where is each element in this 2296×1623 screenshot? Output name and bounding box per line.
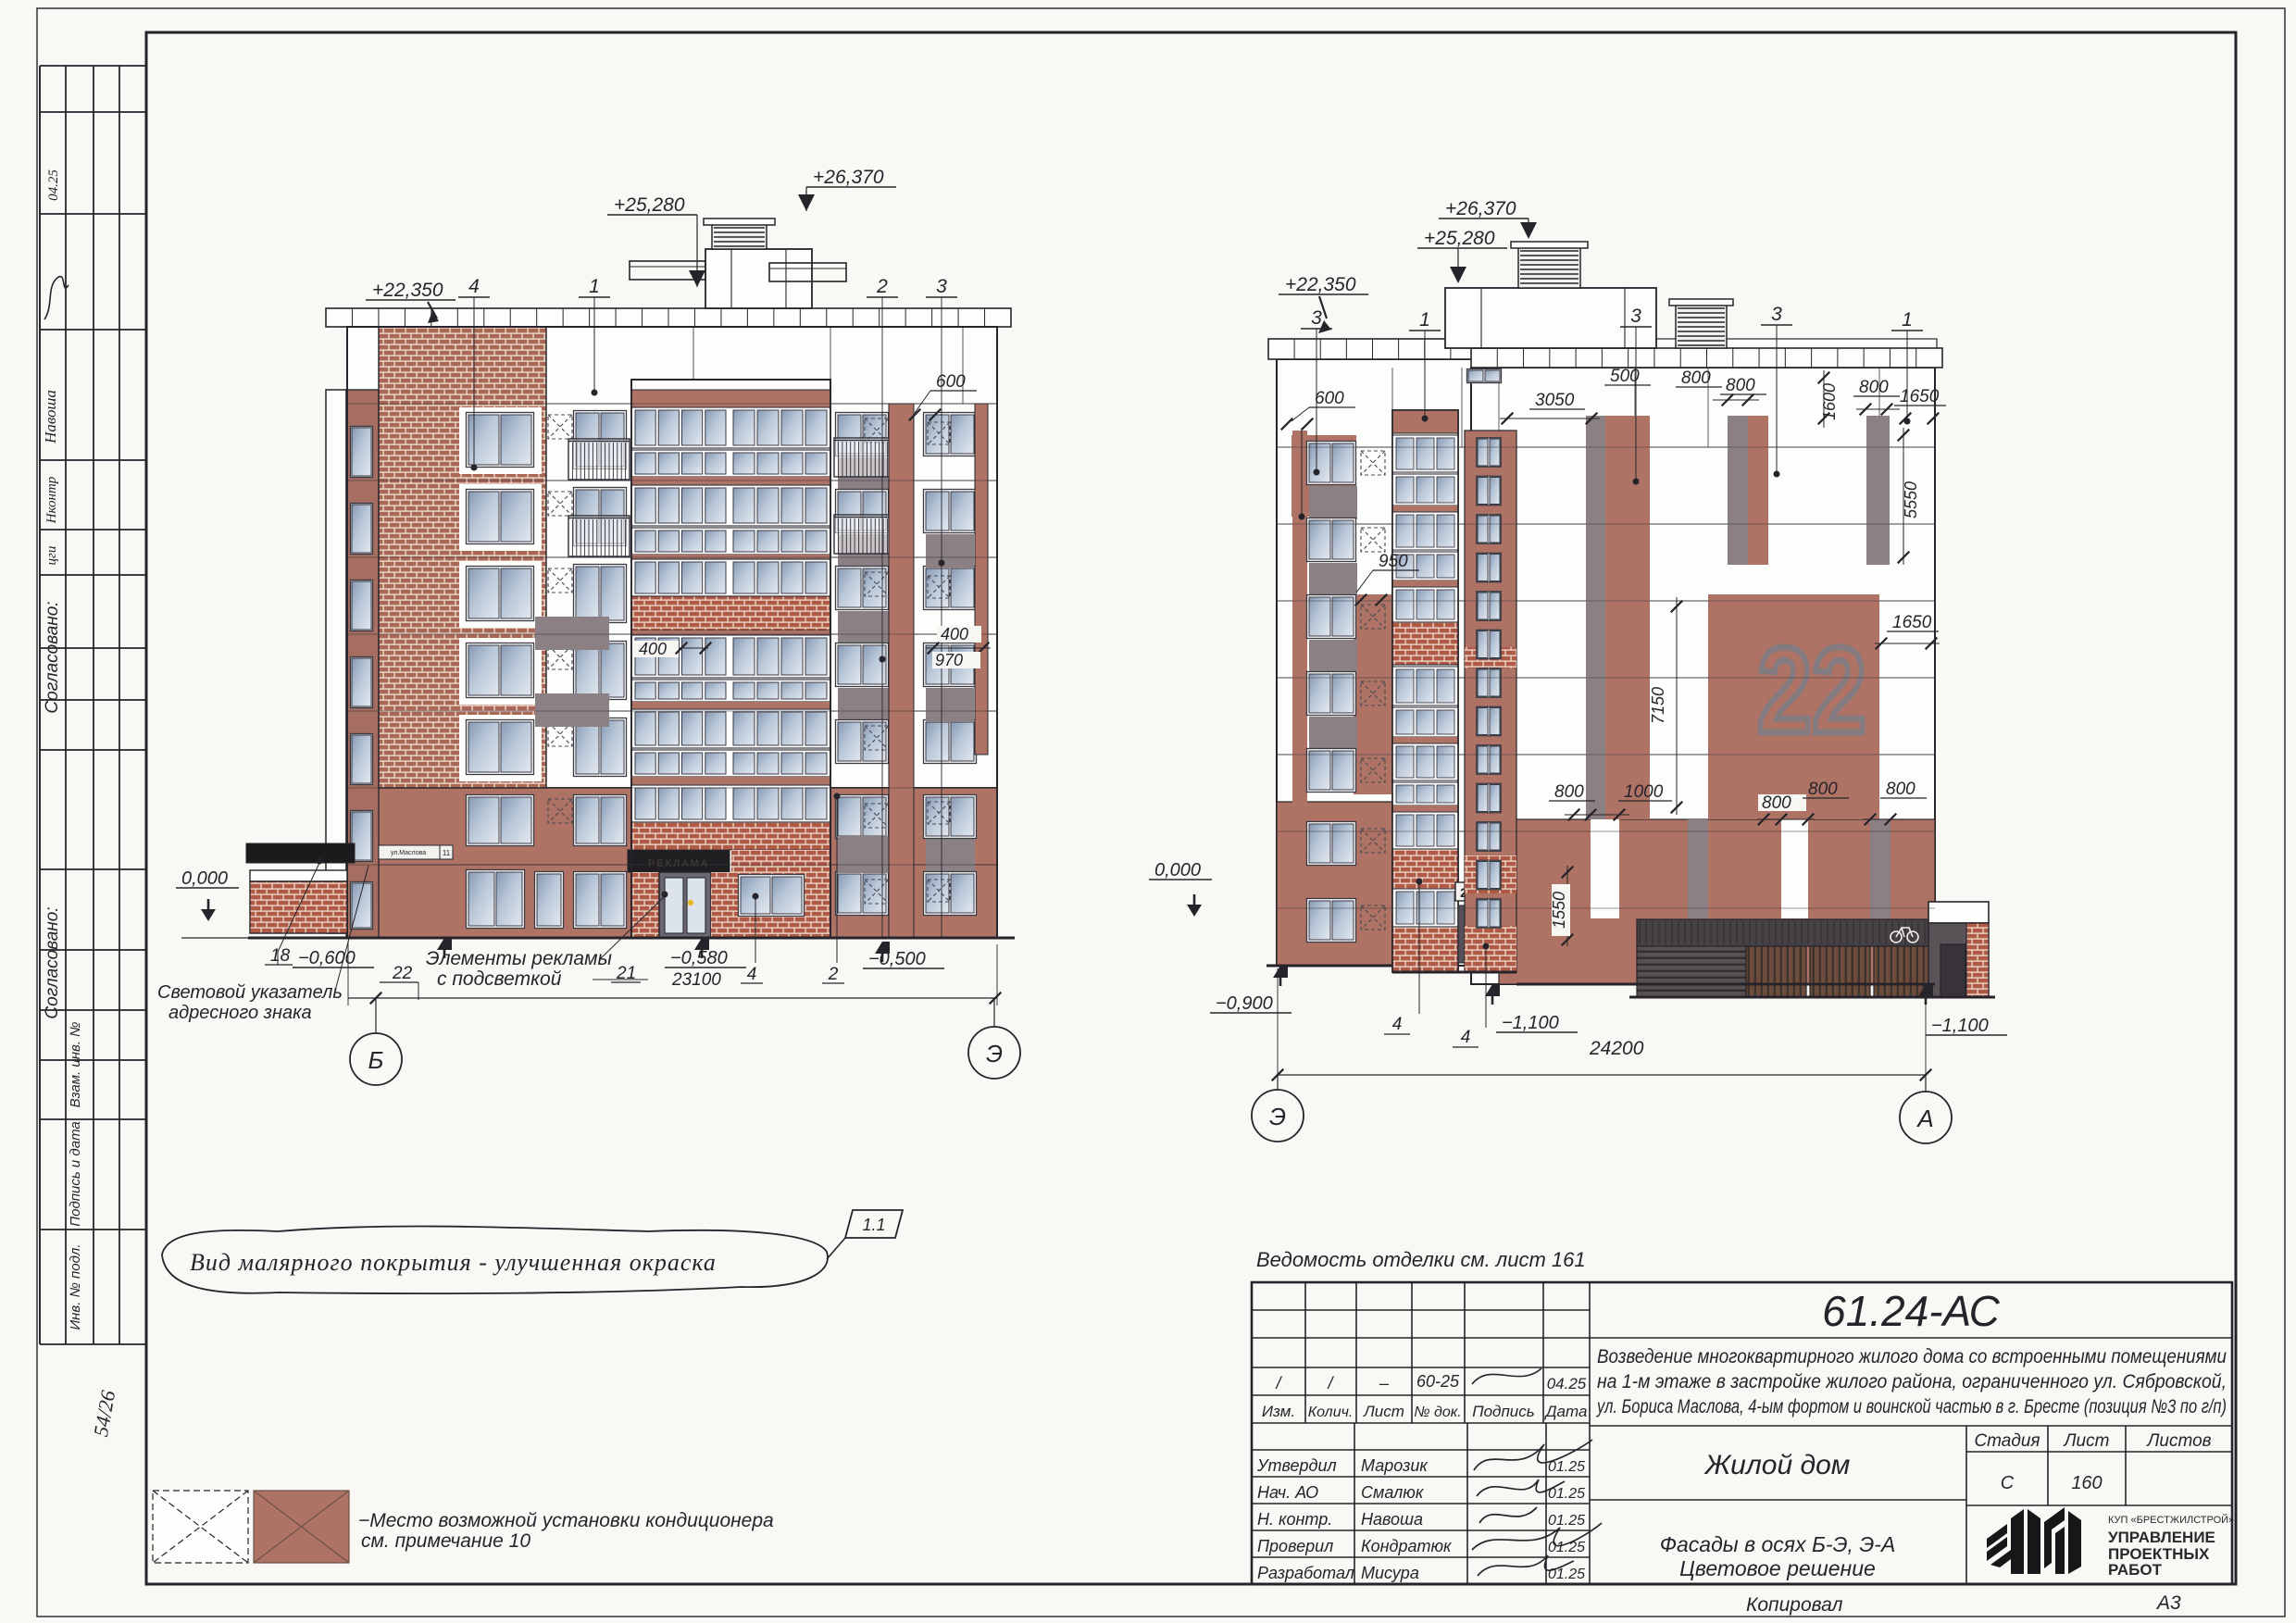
svg-text:600: 600 xyxy=(936,372,966,392)
svg-text:+25,280: +25,280 xyxy=(1424,228,1495,249)
svg-text:Марозик: Марозик xyxy=(1361,1456,1429,1475)
svg-text:Разработал: Разработал xyxy=(1257,1564,1354,1582)
svg-text:04.25: 04.25 xyxy=(46,169,61,201)
svg-text:+25,280: +25,280 xyxy=(614,194,685,216)
svg-text:400: 400 xyxy=(941,625,968,643)
svg-text:970: 970 xyxy=(935,651,963,669)
svg-text:160: 160 xyxy=(2071,1473,2102,1493)
svg-text:800: 800 xyxy=(1681,368,1711,388)
svg-text:−0,600: −0,600 xyxy=(298,948,356,968)
svg-text:ул. Бориса Маслова, 4-ым форто: ул. Бориса Маслова, 4-ым фортом и воинск… xyxy=(1595,1396,2227,1417)
svg-text:цги: цги xyxy=(44,546,59,566)
svg-text:800: 800 xyxy=(1554,782,1584,802)
svg-text:Смалюк: Смалюк xyxy=(1361,1483,1425,1502)
svg-text:18: 18 xyxy=(270,946,291,966)
svg-text:Б: Б xyxy=(368,1046,384,1074)
svg-text:на 1-м этаже в застройке жилог: на 1-м этаже в застройке жилого района, … xyxy=(1597,1371,2227,1392)
svg-text:Навоша: Навоша xyxy=(42,390,59,444)
svg-text:Инв. № подл.: Инв. № подл. xyxy=(68,1243,83,1330)
svg-text:3: 3 xyxy=(1771,304,1782,325)
svg-text:–: – xyxy=(1379,1374,1390,1392)
svg-text:3: 3 xyxy=(1311,307,1322,329)
svg-text:Утвердил: Утвердил xyxy=(1256,1456,1337,1475)
svg-text:Н. контр.: Н. контр. xyxy=(1257,1510,1332,1529)
svg-text:С: С xyxy=(2001,1473,2015,1493)
svg-text:21: 21 xyxy=(616,964,636,983)
svg-text:1550: 1550 xyxy=(1550,892,1568,929)
svg-text:800: 800 xyxy=(1726,376,1755,395)
svg-text:РАБОТ: РАБОТ xyxy=(2108,1561,2163,1579)
svg-text:1650: 1650 xyxy=(1892,613,1932,632)
svg-text:−1,100: −1,100 xyxy=(1502,1013,1559,1033)
svg-text:Лист: Лист xyxy=(1363,1403,1404,1420)
svg-text:5550: 5550 xyxy=(1902,481,1920,518)
svg-text:800: 800 xyxy=(1808,780,1838,799)
svg-text:Подпись: Подпись xyxy=(1472,1403,1534,1420)
svg-text:+22,350: +22,350 xyxy=(372,280,443,301)
svg-text:1: 1 xyxy=(1419,309,1430,331)
svg-text:Э: Э xyxy=(986,1040,1003,1067)
svg-text:Колич.: Колич. xyxy=(1308,1405,1354,1420)
svg-text:0,000: 0,000 xyxy=(1154,860,1201,880)
svg-text:Цветовое решение: Цветовое решение xyxy=(1679,1556,1876,1580)
svg-text:см. примечание 10: см. примечание 10 xyxy=(361,1530,530,1552)
svg-text:А: А xyxy=(1915,1105,1933,1132)
svg-text:Взам. инв. №: Взам. инв. № xyxy=(68,1022,83,1108)
svg-text:Копировал: Копировал xyxy=(1746,1594,1843,1616)
svg-text:4: 4 xyxy=(747,965,757,984)
svg-text:800: 800 xyxy=(1886,780,1915,799)
svg-text:800: 800 xyxy=(1762,793,1791,813)
svg-text:Мисура: Мисура xyxy=(1361,1564,1419,1582)
svg-text:1.1: 1.1 xyxy=(862,1216,885,1234)
svg-text:24200: 24200 xyxy=(1589,1038,1644,1059)
svg-text:А3: А3 xyxy=(2155,1592,2181,1614)
svg-text:УПРАВЛЕНИЕ: УПРАВЛЕНИЕ xyxy=(2108,1529,2215,1546)
svg-text:22: 22 xyxy=(392,964,413,983)
svg-text:ул.Маслова: ул.Маслова xyxy=(391,850,426,856)
svg-text:3050: 3050 xyxy=(1535,391,1575,410)
svg-text:Стадия: Стадия xyxy=(1974,1431,2040,1451)
svg-text:1600: 1600 xyxy=(1820,383,1839,420)
svg-text:0,000: 0,000 xyxy=(181,868,228,889)
svg-text:КУП «БРЕСТЖИЛСТРОЙ»: КУП «БРЕСТЖИЛСТРОЙ» xyxy=(2108,1514,2234,1526)
svg-text:7150: 7150 xyxy=(1649,687,1667,724)
svg-text:адресного знака: адресного знака xyxy=(168,1003,312,1023)
svg-text:23100: 23100 xyxy=(671,970,721,990)
svg-text:01.25: 01.25 xyxy=(1548,1513,1585,1529)
svg-text:Кондратюк: Кондратюк xyxy=(1361,1537,1453,1555)
svg-text:04.25: 04.25 xyxy=(1547,1375,1587,1392)
svg-text:60-25: 60-25 xyxy=(1416,1372,1460,1391)
svg-text:Нач. АО: Нач. АО xyxy=(1257,1483,1318,1502)
svg-text:+22,350: +22,350 xyxy=(1285,274,1356,295)
svg-text:+26,370: +26,370 xyxy=(813,167,884,188)
svg-text:500: 500 xyxy=(1610,367,1640,386)
svg-text:РЕКЛАМА: РЕКЛАМА xyxy=(648,858,709,869)
svg-text:600: 600 xyxy=(1315,389,1344,408)
svg-text:Э: Э xyxy=(1269,1103,1286,1130)
svg-text:1000: 1000 xyxy=(1624,782,1664,802)
svg-text:Проверил: Проверил xyxy=(1257,1537,1333,1555)
svg-text:Дата: Дата xyxy=(1544,1403,1588,1420)
svg-text:1: 1 xyxy=(1902,309,1913,331)
svg-text:−0,900: −0,900 xyxy=(1216,993,1273,1014)
svg-text:4: 4 xyxy=(1461,1028,1471,1047)
svg-text:Жилой дом: Жилой дом xyxy=(1703,1450,1851,1480)
svg-text:−Место возможной установки кон: −Место возможной установки кондиционера xyxy=(358,1510,774,1531)
svg-text:Листов: Листов xyxy=(2145,1431,2211,1451)
svg-text:1650: 1650 xyxy=(1900,387,1940,406)
svg-text:400: 400 xyxy=(639,640,667,658)
svg-text:2: 2 xyxy=(828,965,839,984)
svg-text:2: 2 xyxy=(876,276,888,297)
svg-text:№ док.: № док. xyxy=(1414,1405,1462,1420)
svg-text:Вид малярного покрытия - ул: Вид малярного покрытия - улучшенная окра… xyxy=(190,1249,717,1276)
svg-text:Нконтр: Нконтр xyxy=(44,476,59,524)
svg-text:Ведомость отделки см. лист 161: Ведомость отделки см. лист 161 xyxy=(1256,1248,1586,1271)
svg-text:Возведение многоквартирного жи: Возведение многоквартирного жилого дома … xyxy=(1597,1346,2227,1367)
svg-text:Подпись и дата: Подпись и дата xyxy=(68,1121,83,1226)
svg-text:950: 950 xyxy=(1379,552,1408,571)
svg-text:+26,370: +26,370 xyxy=(1445,198,1516,219)
svg-text:4: 4 xyxy=(468,276,480,297)
svg-text:61.24-АС: 61.24-АС xyxy=(1822,1287,2001,1335)
svg-text:11: 11 xyxy=(443,849,451,857)
svg-text:800: 800 xyxy=(1859,378,1889,397)
svg-text:1: 1 xyxy=(589,276,600,297)
svg-text:−1,100: −1,100 xyxy=(1931,1016,1989,1036)
svg-text:22: 22 xyxy=(1757,622,1866,758)
svg-text:Изм.: Изм. xyxy=(1262,1403,1295,1420)
svg-text:Навоша: Навоша xyxy=(1361,1510,1423,1529)
svg-text:Лист: Лист xyxy=(2063,1431,2110,1451)
svg-text:01.25: 01.25 xyxy=(1548,1486,1585,1502)
svg-text:−0,580: −0,580 xyxy=(670,948,728,968)
svg-text:Фасады в осях Б-Э, Э-А: Фасады в осях Б-Э, Э-А xyxy=(1660,1532,1896,1556)
svg-text:Согласовано:: Согласовано: xyxy=(43,906,62,1018)
svg-text:с подсветкой: с подсветкой xyxy=(437,968,562,990)
svg-text:3: 3 xyxy=(1630,306,1641,327)
svg-text:Элементы рекламы: Элементы рекламы xyxy=(426,948,612,969)
svg-text:4: 4 xyxy=(1392,1015,1403,1034)
svg-text:Согласовано:: Согласовано: xyxy=(43,601,62,713)
svg-text:01.25: 01.25 xyxy=(1548,1459,1585,1475)
svg-text:3: 3 xyxy=(936,276,947,297)
svg-text:Световой указатель: Световой указатель xyxy=(157,982,343,1003)
